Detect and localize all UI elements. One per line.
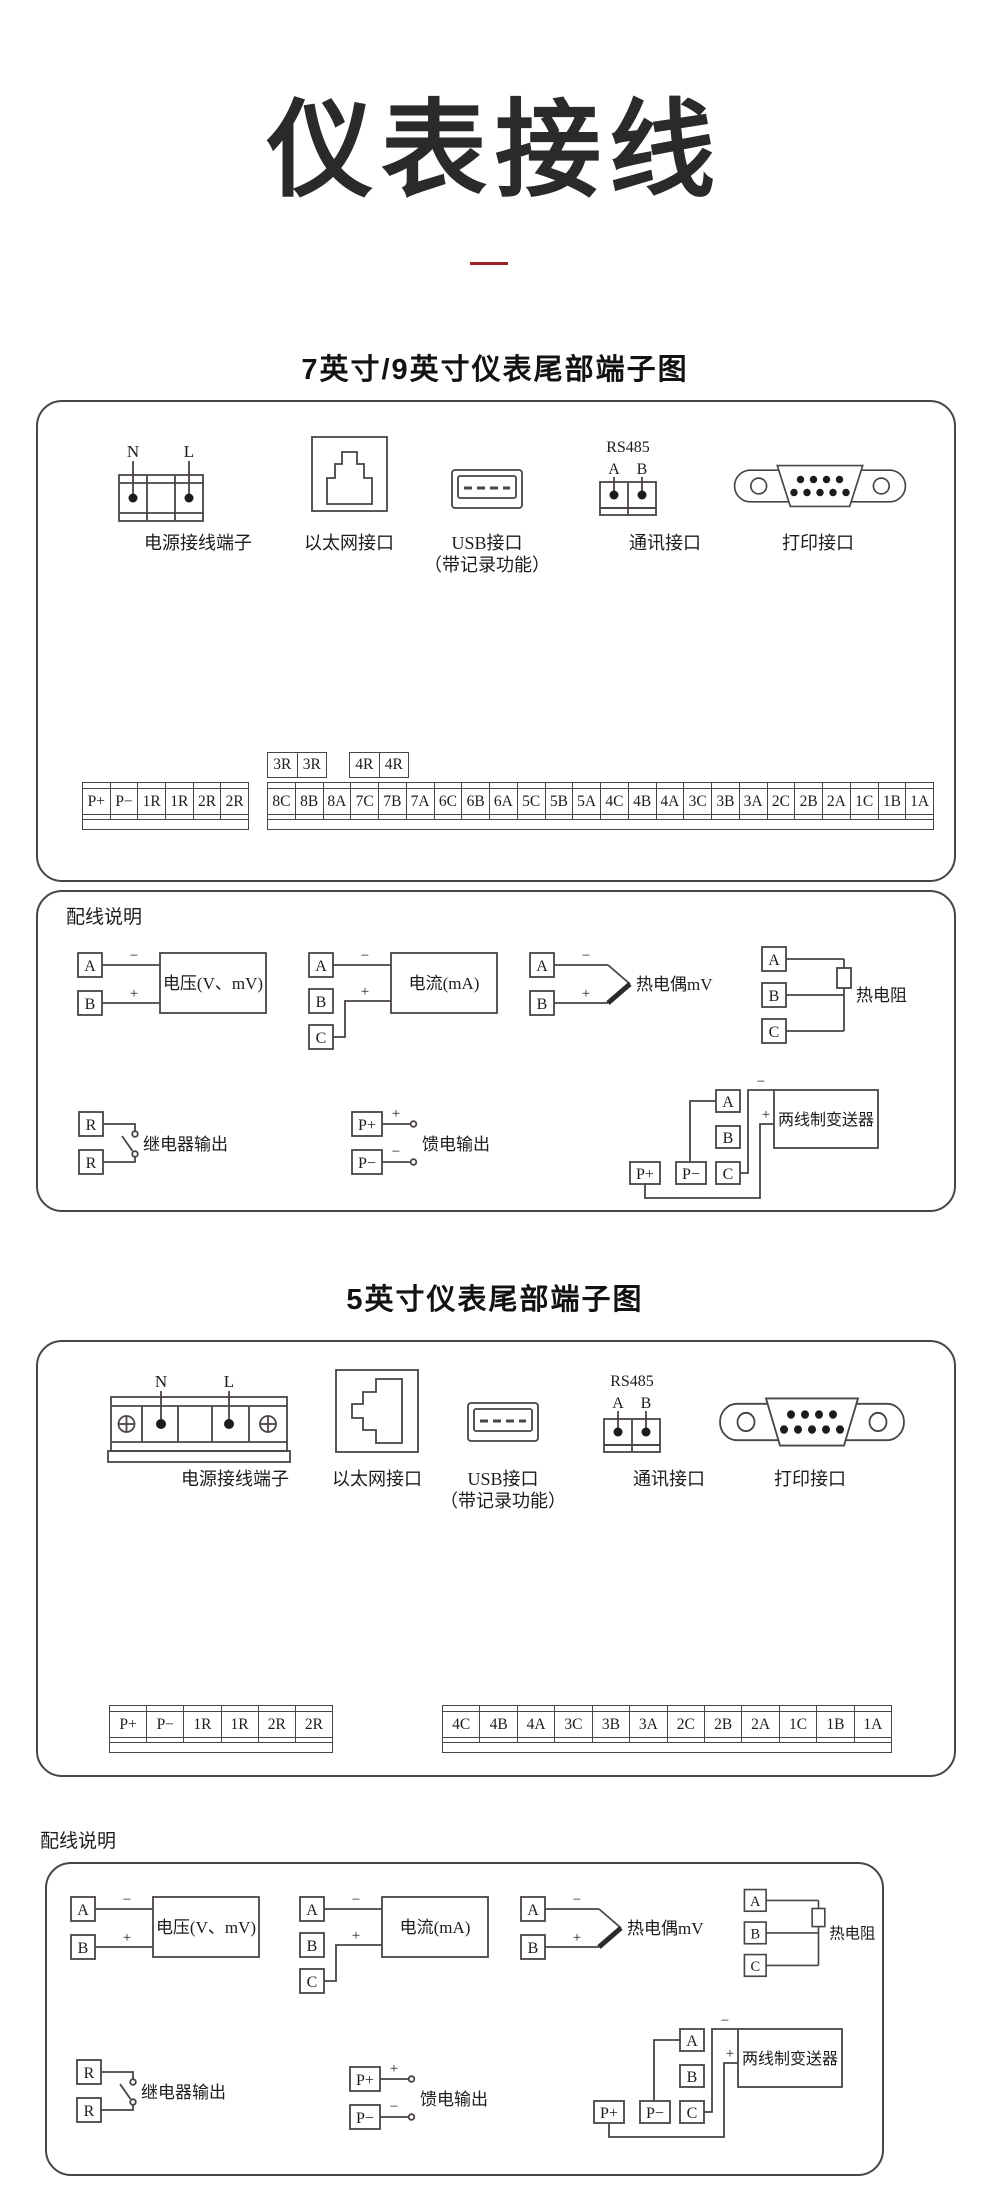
power-terminal-icon: N L xyxy=(98,427,218,522)
current-wiring-diagram: A B C − + 电流(mA) xyxy=(294,1891,494,1995)
terminal-cell: 2C xyxy=(668,1712,705,1737)
panel-wiring-legend-5: A B − + 电压(V、mV) A B C − + 电流(mA) A B − xyxy=(45,1862,884,2176)
terminal-c: C xyxy=(687,2105,698,2122)
relay-pair-4r: 4R 4R xyxy=(349,752,409,778)
rs485-terminal-icon: RS485 A B xyxy=(592,430,664,522)
rs485-a-label: A xyxy=(608,461,620,478)
terminal-a: A xyxy=(768,952,780,969)
strip-rail xyxy=(443,1737,891,1742)
terminal-cell: 2B xyxy=(795,789,823,814)
terminal-cell: P+ xyxy=(110,1712,147,1737)
terminal-cell: 1C xyxy=(851,789,879,814)
strip-mount-bar xyxy=(267,820,934,830)
power-n-label: N xyxy=(127,442,139,461)
terminal-cell: 3A xyxy=(630,1712,667,1737)
strip-mount-bar xyxy=(82,820,249,830)
terminal-cell: 4B xyxy=(629,789,657,814)
terminal-cell: 1B xyxy=(817,1712,854,1737)
ethernet-port-icon xyxy=(332,1367,422,1455)
voltage-label: 电压(V、mV) xyxy=(156,1918,256,1937)
terminal-cell: 1R xyxy=(184,1712,221,1737)
power-terminal-icon: N L xyxy=(102,1365,297,1465)
plus-sign: + xyxy=(130,986,138,1002)
relay-output-diagram: R R 继电器输出 xyxy=(71,2054,241,2130)
terminal-cell: 2C xyxy=(768,789,796,814)
terminal-b: B xyxy=(537,996,548,1013)
title-divider xyxy=(470,262,508,265)
minus-sign: − xyxy=(361,948,369,964)
terminal-c: C xyxy=(723,1166,734,1183)
rs485-bus-label: RS485 xyxy=(606,439,650,456)
relay-pair-3r: 3R 3R xyxy=(267,752,327,778)
terminal-r2: R xyxy=(86,1155,97,1172)
terminal-cell: P− xyxy=(147,1712,184,1737)
minus-sign: − xyxy=(390,2099,398,2115)
current-label: 电流(mA) xyxy=(409,974,480,993)
terminal-cell: 2A xyxy=(742,1712,779,1737)
rtd-label: 热电阻 xyxy=(856,986,907,1005)
terminal-cell: 3B xyxy=(593,1712,630,1737)
minus-sign: − xyxy=(392,1144,400,1160)
transmitter-wiring-diagram: A B C P+ P− − + 两线制变送器 xyxy=(622,1078,882,1206)
voltage-wiring-diagram: A B − + 电压(V、mV) xyxy=(65,1891,265,1967)
current-label: 电流(mA) xyxy=(400,1918,471,1937)
terminal-cell: 1A xyxy=(906,789,933,814)
terminal-cell: 2R xyxy=(194,789,222,814)
plus-sign: + xyxy=(726,2046,734,2062)
terminal-cell: 3C xyxy=(684,789,712,814)
terminal-a: A xyxy=(84,958,96,975)
terminal-cell: 2R xyxy=(296,1712,332,1737)
panel-wiring-legend-7-9: 配线说明 A B − + 电压(V、mV) A B C − + 电流(mA) A… xyxy=(36,890,956,1212)
terminal-p-minus: P− xyxy=(358,1155,376,1172)
terminal-r2: R xyxy=(84,2103,95,2120)
terminal-cell: 8B xyxy=(296,789,324,814)
terminal-b: B xyxy=(723,1130,734,1147)
power-n-label: N xyxy=(155,1372,167,1391)
strip-mount-bar xyxy=(442,1743,892,1753)
wiring-guide-page: 仪表接线 7英寸/9英寸仪表尾部端子图 N L 电源接线端子 以太网接口 xyxy=(0,0,990,2200)
terminal-b: B xyxy=(85,996,96,1013)
terminal-a: A xyxy=(315,958,327,975)
plus-sign: + xyxy=(582,986,590,1002)
plus-sign: + xyxy=(361,984,369,1000)
plus-sign: + xyxy=(123,1930,131,1946)
printer-port-icon xyxy=(714,1392,910,1452)
terminal-cell: 6A xyxy=(490,789,518,814)
panel-7-9-terminals: N L 电源接线端子 以太网接口 USB接口 （带记录功能） xyxy=(36,400,956,882)
minus-sign: − xyxy=(582,948,590,964)
terminal-cell: 3C xyxy=(555,1712,592,1737)
terminal-a: A xyxy=(722,1094,734,1111)
terminal-cell: 2A xyxy=(823,789,851,814)
terminal-a: A xyxy=(536,958,548,975)
terminal-cell: 6C xyxy=(435,789,463,814)
terminal-cell: 1C xyxy=(780,1712,817,1737)
minus-sign: − xyxy=(573,1892,581,1908)
terminal-strip-power-relay: P+ P− 1R 1R 2R 2R xyxy=(82,782,249,830)
strip-rail xyxy=(83,814,248,819)
terminal-c: C xyxy=(307,1974,318,1991)
power-l-label: L xyxy=(224,1372,234,1391)
terminal-c: C xyxy=(316,1030,327,1047)
terminal-p-minus: P− xyxy=(646,2105,664,2122)
plus-sign: + xyxy=(573,1930,581,1946)
terminal-cell: 7A xyxy=(407,789,435,814)
comm-label: 通讯接口 xyxy=(577,529,753,555)
terminal-p-minus: P− xyxy=(682,1166,700,1183)
terminal-b: B xyxy=(769,988,780,1005)
power-l-label: L xyxy=(184,442,194,461)
terminal-strip-channels: 8C 8B 8A 7C 7B 7A 6C 6B 6A 5C 5B 5A 4C 4… xyxy=(267,782,934,830)
terminal-p-plus: P+ xyxy=(358,1117,376,1134)
rs485-a-label: A xyxy=(612,1395,624,1412)
terminal-b: B xyxy=(687,2069,698,2086)
terminal-cell: 4C xyxy=(601,789,629,814)
strip-rail xyxy=(268,814,933,819)
terminal-cell: 3R xyxy=(268,753,298,777)
relay-label: 继电器输出 xyxy=(143,1135,228,1154)
terminal-cell: 1R xyxy=(222,1712,259,1737)
thermocouple-label: 热电偶mV xyxy=(636,975,713,994)
printer-label: 打印接口 xyxy=(722,1465,898,1491)
terminal-b: B xyxy=(528,1940,539,1957)
rtd-wiring-diagram: A B C 热电阻 xyxy=(739,1884,879,1980)
terminal-cell: 2B xyxy=(705,1712,742,1737)
panel-5-terminals: N L 电源接线端子 以太网接口 xyxy=(36,1340,956,1777)
strip-rail xyxy=(110,1737,332,1742)
terminal-cell: 2R xyxy=(221,789,248,814)
terminal-cell: 4B xyxy=(480,1712,517,1737)
terminal-b: B xyxy=(307,1938,318,1955)
rs485-b-label: B xyxy=(641,1395,652,1412)
thermocouple-label: 热电偶mV xyxy=(627,1919,704,1938)
terminal-p-plus: P+ xyxy=(356,2072,374,2089)
usb-port-icon xyxy=(466,1401,540,1443)
usb-port-icon xyxy=(450,468,524,510)
terminal-cell: 6B xyxy=(462,789,490,814)
terminal-p-plus: P+ xyxy=(600,2105,618,2122)
minus-sign: − xyxy=(123,1892,131,1908)
terminal-cell: 1R xyxy=(166,789,194,814)
terminal-r1: R xyxy=(86,1117,97,1134)
plus-sign: + xyxy=(352,1928,360,1944)
ethernet-port-icon xyxy=(307,434,392,514)
terminal-cell: 3R xyxy=(298,753,327,777)
terminal-cell: 3B xyxy=(712,789,740,814)
terminal-cell: 1R xyxy=(138,789,166,814)
transmitter-wiring-diagram: A B C P+ P− − + 两线制变送器 xyxy=(586,2017,846,2145)
section-title-7-9: 7英寸/9英寸仪表尾部端子图 xyxy=(0,346,990,388)
transmitter-label: 两线制变送器 xyxy=(742,2050,838,2068)
thermocouple-wiring-diagram: A B − + 热电偶mV xyxy=(515,1891,705,1967)
feed-label: 馈电输出 xyxy=(422,1135,490,1154)
terminal-b: B xyxy=(316,994,327,1011)
power-terminal-label: 电源接线端子 xyxy=(110,529,286,555)
feed-output-diagram: P+ P− + − 馈电输出 xyxy=(346,1106,496,1182)
feed-output-diagram: P+ P− + − 馈电输出 xyxy=(344,2061,494,2137)
terminal-cell: 1A xyxy=(855,1712,891,1737)
terminal-cell: 3A xyxy=(740,789,768,814)
terminal-strip-power-relay: P+ P− 1R 1R 2R 2R xyxy=(109,1705,333,1753)
terminal-r1: R xyxy=(84,2065,95,2082)
terminal-cell: 4C xyxy=(443,1712,480,1737)
current-wiring-diagram: A B C − + 电流(mA) xyxy=(303,947,503,1051)
usb-sublabel: （带记录功能） xyxy=(399,551,575,577)
terminal-a: A xyxy=(306,1902,318,1919)
section-title-5: 5英寸仪表尾部端子图 xyxy=(0,1276,990,1318)
printer-label: 打印接口 xyxy=(730,529,906,555)
terminal-cell: 4A xyxy=(657,789,685,814)
terminal-cell: 4R xyxy=(380,753,409,777)
minus-sign: − xyxy=(721,2013,729,2029)
terminal-cell: 5C xyxy=(518,789,546,814)
wiring-heading: 配线说明 xyxy=(66,902,142,929)
terminal-cell: 7C xyxy=(351,789,379,814)
rs485-terminal-icon: RS485 A B xyxy=(596,1364,668,1459)
terminal-b: B xyxy=(78,1940,89,1957)
terminal-cell: 8A xyxy=(324,789,352,814)
thermocouple-wiring-diagram: A B − + 热电偶mV xyxy=(524,947,714,1023)
rtd-label: 热电阻 xyxy=(829,1924,875,1942)
terminal-strip-channels: 4C 4B 4A 3C 3B 3A 2C 2B 2A 1C 1B 1A xyxy=(442,1705,892,1753)
transmitter-label: 两线制变送器 xyxy=(778,1111,874,1129)
printer-port-icon xyxy=(722,460,918,512)
relay-output-diagram: R R 继电器输出 xyxy=(73,1106,243,1182)
terminal-cell: 4R xyxy=(350,753,380,777)
relay-label: 继电器输出 xyxy=(141,2083,226,2102)
terminal-a: A xyxy=(77,1902,89,1919)
plus-sign: + xyxy=(762,1107,770,1123)
usb-sublabel: （带记录功能） xyxy=(415,1487,591,1513)
terminal-cell: 4A xyxy=(518,1712,555,1737)
terminal-a: A xyxy=(686,2033,698,2050)
plus-sign: + xyxy=(390,2061,398,2077)
rs485-bus-label: RS485 xyxy=(610,1373,654,1390)
voltage-label: 电压(V、mV) xyxy=(163,974,263,993)
terminal-cell: 8C xyxy=(268,789,296,814)
terminal-cell: 2R xyxy=(259,1712,296,1737)
terminal-b: B xyxy=(750,1926,760,1942)
terminal-c: C xyxy=(769,1024,780,1041)
terminal-cell: 7B xyxy=(379,789,407,814)
voltage-wiring-diagram: A B − + 电压(V、mV) xyxy=(72,947,272,1023)
minus-sign: − xyxy=(130,948,138,964)
minus-sign: − xyxy=(757,1074,765,1090)
terminal-cell: P+ xyxy=(83,789,111,814)
terminal-cell: 5B xyxy=(546,789,574,814)
plus-sign: + xyxy=(392,1106,400,1122)
terminal-a: A xyxy=(750,1894,761,1910)
rs485-b-label: B xyxy=(637,461,648,478)
rtd-wiring-diagram: A B C 热电阻 xyxy=(756,941,911,1047)
terminal-cell: 5A xyxy=(573,789,601,814)
terminal-cell: P− xyxy=(111,789,139,814)
minus-sign: − xyxy=(352,1892,360,1908)
feed-label: 馈电输出 xyxy=(420,2090,488,2109)
wiring-heading: 配线说明 xyxy=(40,1826,116,1853)
terminal-a: A xyxy=(527,1902,539,1919)
terminal-cell: 1B xyxy=(879,789,907,814)
terminal-p-plus: P+ xyxy=(636,1166,654,1183)
terminal-p-minus: P− xyxy=(356,2110,374,2127)
terminal-c: C xyxy=(750,1959,760,1975)
page-title: 仪表接线 xyxy=(0,64,990,218)
strip-mount-bar xyxy=(109,1743,333,1753)
